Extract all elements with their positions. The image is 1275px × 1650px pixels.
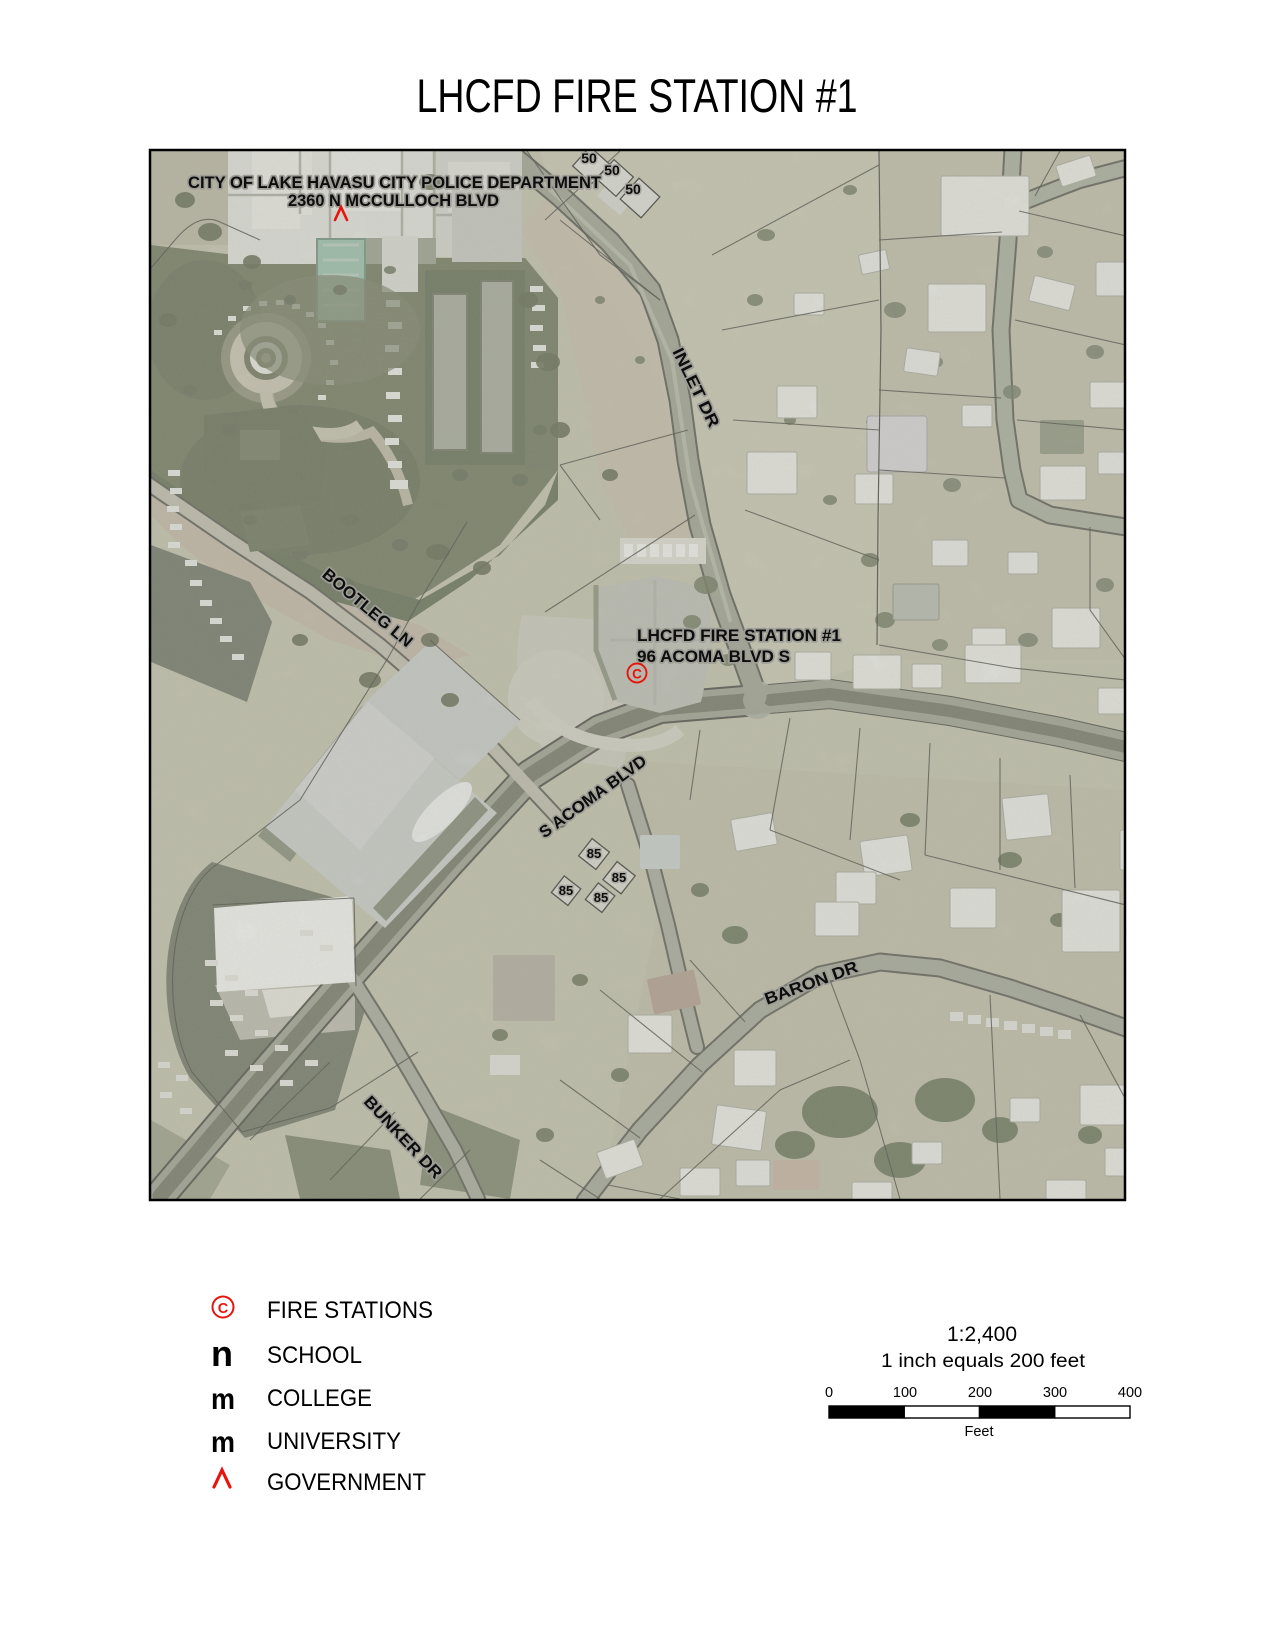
svg-text:85: 85: [612, 870, 626, 885]
svg-text:300: 300: [1043, 1385, 1067, 1401]
svg-text:85: 85: [587, 846, 601, 861]
svg-text:200: 200: [968, 1385, 992, 1401]
svg-text:96 ACOMA BLVD S: 96 ACOMA BLVD S: [637, 648, 790, 666]
svg-text:FIRE STATIONS: FIRE STATIONS: [267, 1297, 433, 1324]
svg-text:n: n: [211, 1333, 233, 1374]
svg-text:1:2,400: 1:2,400: [947, 1323, 1017, 1346]
svg-text:C: C: [632, 667, 642, 682]
svg-text:50: 50: [604, 162, 620, 178]
svg-text:GOVERNMENT: GOVERNMENT: [267, 1469, 426, 1496]
svg-text:400: 400: [1118, 1385, 1142, 1401]
svg-text:50: 50: [581, 150, 597, 166]
svg-text:50: 50: [625, 181, 641, 197]
svg-text:COLLEGE: COLLEGE: [267, 1385, 372, 1412]
svg-text:85: 85: [559, 883, 573, 898]
svg-text:Feet: Feet: [964, 1424, 993, 1440]
svg-text:UNIVERSITY: UNIVERSITY: [267, 1428, 401, 1455]
svg-text:CITY OF LAKE HAVASU CITY POLIC: CITY OF LAKE HAVASU CITY POLICE DEPARTME…: [188, 174, 601, 192]
svg-text:m: m: [211, 1426, 235, 1459]
svg-text:1 inch equals 200 feet: 1 inch equals 200 feet: [881, 1351, 1086, 1372]
svg-text:C: C: [218, 1301, 229, 1317]
svg-text:LHCFD FIRE STATION #1: LHCFD FIRE STATION #1: [417, 69, 858, 122]
svg-text:LHCFD FIRE STATION #1: LHCFD FIRE STATION #1: [637, 627, 841, 645]
svg-text:m: m: [211, 1383, 235, 1416]
svg-text:SCHOOL: SCHOOL: [267, 1342, 362, 1369]
svg-text:0: 0: [825, 1385, 833, 1401]
svg-text:85: 85: [594, 890, 608, 905]
svg-text:100: 100: [893, 1385, 917, 1401]
svg-text:2360 N MCCULLOCH BLVD: 2360 N MCCULLOCH BLVD: [288, 192, 499, 210]
